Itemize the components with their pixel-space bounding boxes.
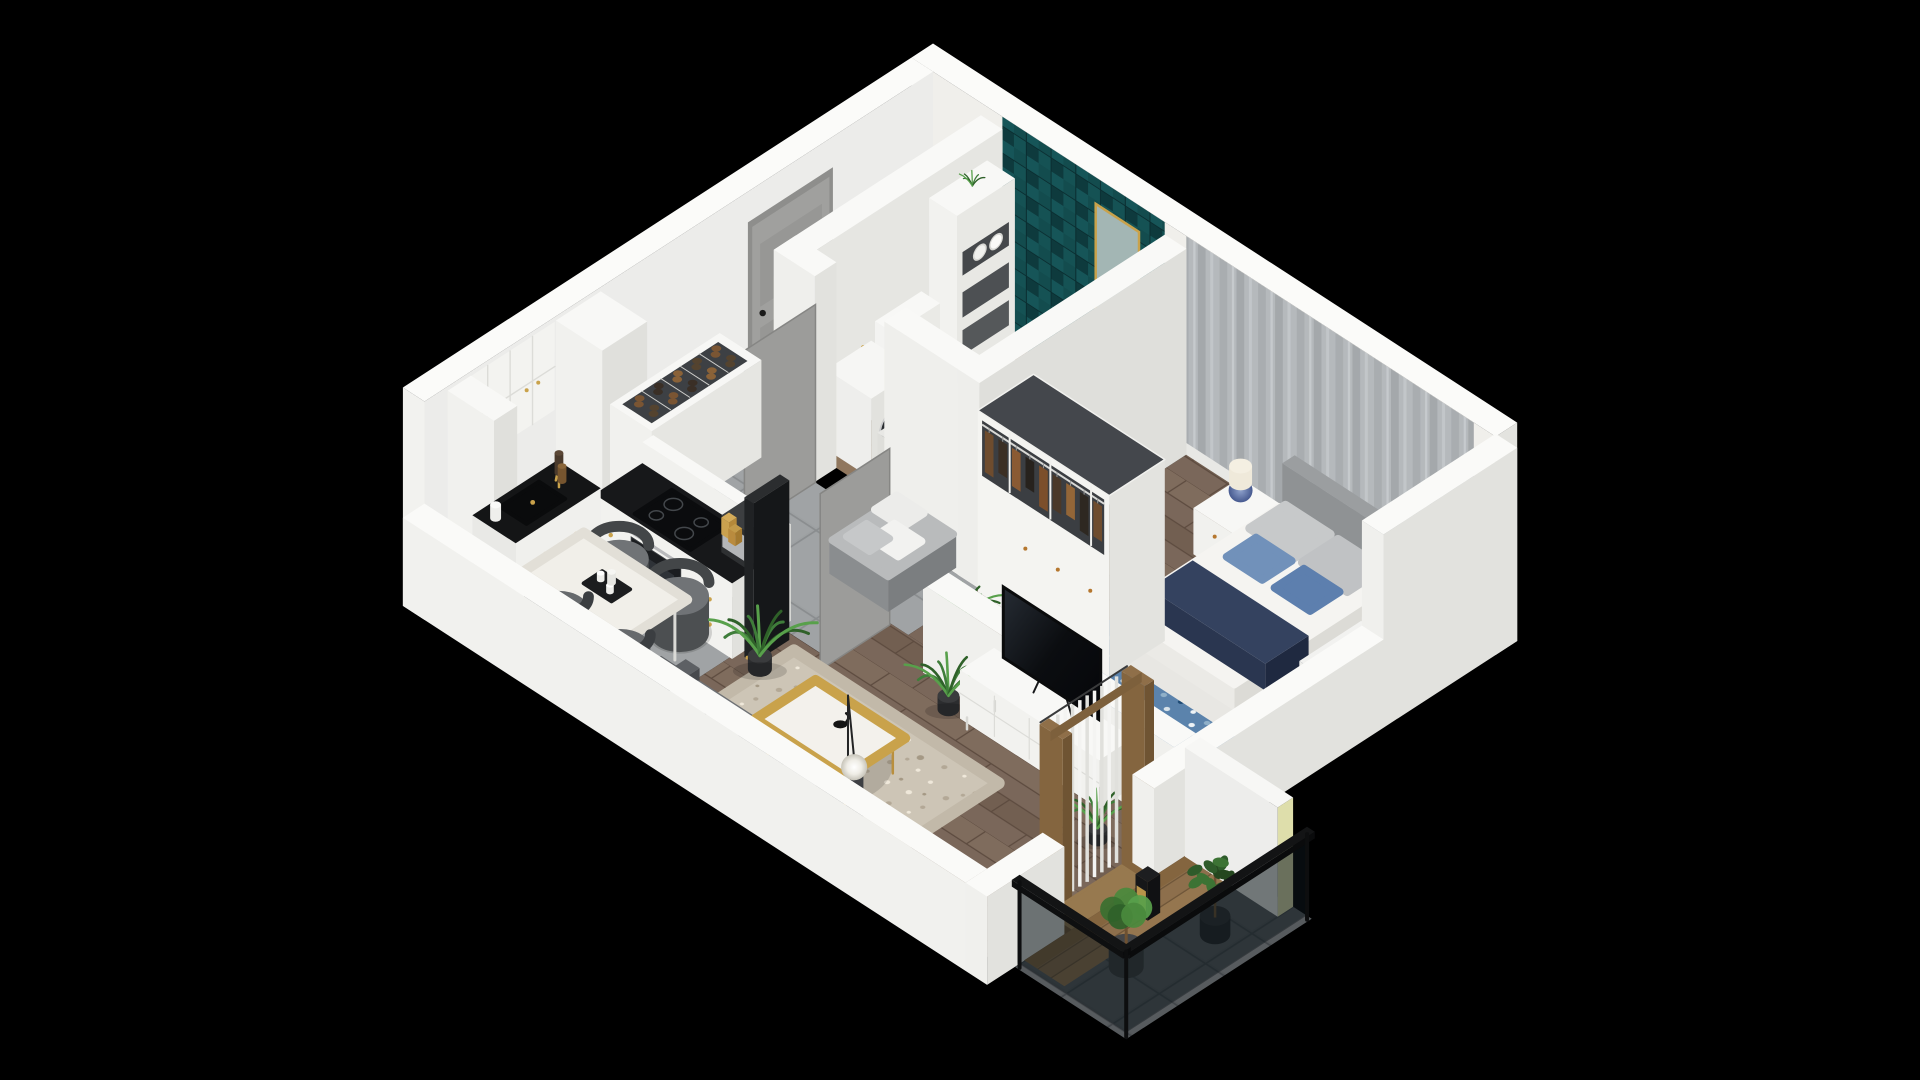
counter-jar bbox=[490, 501, 501, 522]
sink-drain bbox=[530, 500, 535, 505]
cup-1 bbox=[597, 571, 605, 583]
jug bbox=[607, 569, 616, 586]
lamp-shade-left bbox=[1229, 459, 1252, 491]
apartment-3d-floorplan bbox=[0, 0, 1920, 1080]
floorplan-render-canvas bbox=[0, 0, 1920, 1080]
floor-lamp-globe bbox=[841, 754, 867, 780]
spice-jar-2 bbox=[728, 524, 742, 546]
counter-bottle-2 bbox=[558, 463, 567, 484]
entry-door-handle bbox=[759, 310, 765, 316]
